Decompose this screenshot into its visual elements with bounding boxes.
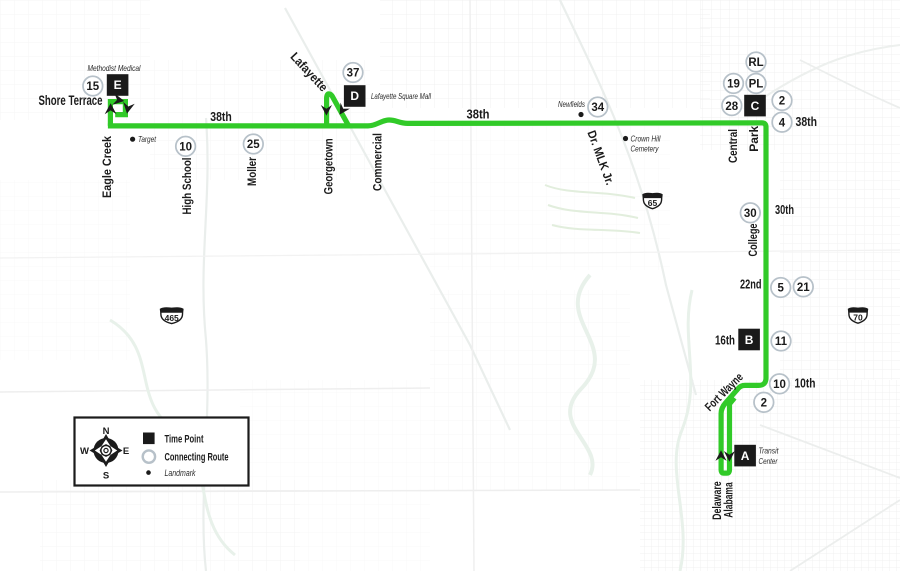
svg-text:Newfields: Newfields <box>558 99 586 109</box>
svg-text:30: 30 <box>744 208 757 220</box>
svg-text:PL: PL <box>749 79 764 91</box>
svg-text:30th: 30th <box>775 203 794 217</box>
svg-text:Cemetery: Cemetery <box>631 144 660 154</box>
svg-text:Center: Center <box>759 456 779 466</box>
svg-text:4: 4 <box>779 117 786 129</box>
svg-text:Connecting Route: Connecting Route <box>165 452 229 464</box>
svg-text:W: W <box>80 446 89 457</box>
svg-text:2: 2 <box>779 96 785 108</box>
svg-text:22nd: 22nd <box>740 278 762 292</box>
svg-text:D: D <box>350 89 359 103</box>
svg-text:Central: Central <box>726 129 740 163</box>
svg-text:S: S <box>103 470 109 481</box>
svg-text:Park: Park <box>747 125 761 151</box>
svg-text:2: 2 <box>761 398 767 410</box>
svg-text:10th: 10th <box>795 377 816 391</box>
svg-text:Crown Hill: Crown Hill <box>631 134 662 144</box>
svg-text:B: B <box>745 333 754 347</box>
svg-text:Georgetown: Georgetown <box>321 138 335 194</box>
svg-text:34: 34 <box>591 102 604 114</box>
svg-text:465: 465 <box>165 313 179 323</box>
svg-text:38th: 38th <box>467 108 490 122</box>
svg-text:A: A <box>741 449 750 463</box>
svg-text:19: 19 <box>727 79 740 91</box>
svg-text:65: 65 <box>648 198 658 208</box>
svg-text:28: 28 <box>725 101 738 113</box>
svg-text:11: 11 <box>775 336 788 348</box>
svg-text:10: 10 <box>773 379 786 391</box>
svg-text:High School: High School <box>180 158 194 215</box>
svg-text:E: E <box>123 446 129 457</box>
svg-text:Target: Target <box>138 134 156 144</box>
svg-text:16th: 16th <box>715 334 735 348</box>
svg-text:Methodist Medical: Methodist Medical <box>88 63 142 73</box>
svg-text:Alabama: Alabama <box>722 482 736 518</box>
svg-text:Transit: Transit <box>759 446 779 456</box>
svg-text:38th: 38th <box>210 110 232 124</box>
svg-text:70: 70 <box>853 312 863 322</box>
svg-text:Eagle Creek: Eagle Creek <box>100 136 114 198</box>
svg-text:C: C <box>751 99 760 113</box>
svg-text:Landmark: Landmark <box>165 468 197 479</box>
svg-text:RL: RL <box>748 57 763 69</box>
svg-text:N: N <box>103 426 110 437</box>
svg-text:38th: 38th <box>796 115 818 129</box>
svg-text:Shore Terrace: Shore Terrace <box>39 93 103 108</box>
svg-text:Time Point: Time Point <box>165 433 204 445</box>
svg-text:5: 5 <box>777 283 784 295</box>
svg-text:21: 21 <box>797 282 810 294</box>
svg-text:10: 10 <box>179 142 192 154</box>
svg-text:25: 25 <box>247 139 260 151</box>
svg-text:Lafayette Square Mall: Lafayette Square Mall <box>371 91 432 101</box>
svg-text:College: College <box>746 223 760 256</box>
svg-text:15: 15 <box>86 81 99 93</box>
svg-text:Moller: Moller <box>245 157 259 186</box>
svg-text:E: E <box>114 78 122 92</box>
svg-text:37: 37 <box>347 68 360 80</box>
svg-text:Commercial: Commercial <box>371 133 385 191</box>
